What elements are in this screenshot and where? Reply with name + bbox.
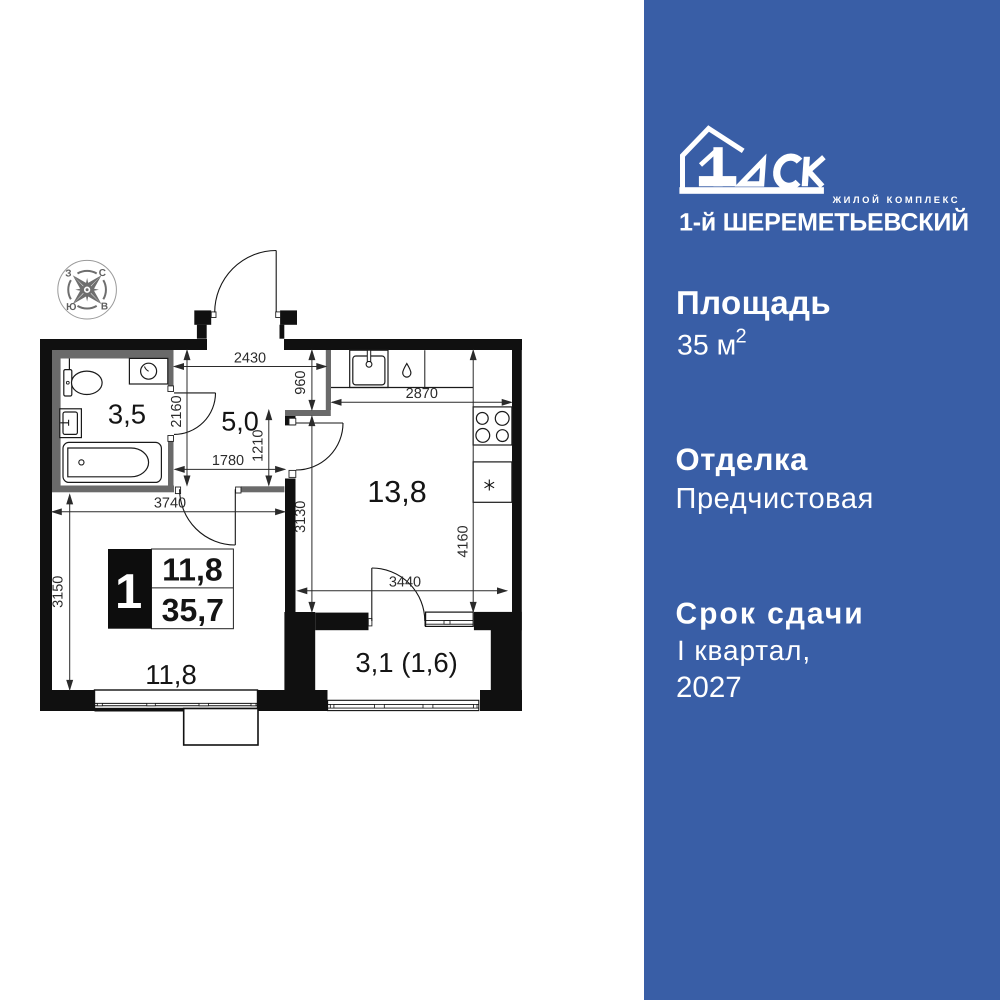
svg-text:I квартал,: I квартал, [677, 635, 811, 666]
svg-text:3,1 (1,6): 3,1 (1,6) [355, 647, 457, 678]
svg-text:2160: 2160 [169, 395, 185, 427]
svg-text:3150: 3150 [50, 576, 66, 608]
svg-text:2: 2 [736, 325, 747, 347]
svg-text:3130: 3130 [293, 501, 309, 533]
svg-text:Срок сдачи: Срок сдачи [676, 598, 865, 631]
svg-text:35 м: 35 м [677, 330, 736, 362]
svg-text:1780: 1780 [212, 453, 244, 469]
svg-text:13,8: 13,8 [367, 475, 426, 509]
svg-text:Ю: Ю [66, 302, 76, 313]
svg-text:З: З [65, 269, 71, 280]
svg-text:Площадь: Площадь [676, 284, 831, 321]
svg-text:35,7: 35,7 [162, 592, 224, 628]
svg-text:ЖИЛОЙ КОМПЛЕКС: ЖИЛОЙ КОМПЛЕКС [832, 194, 961, 205]
svg-text:960: 960 [293, 370, 309, 394]
svg-text:2027: 2027 [676, 671, 742, 704]
svg-text:3,5: 3,5 [108, 399, 146, 430]
svg-text:В: В [101, 302, 108, 313]
svg-text:11,8: 11,8 [162, 552, 223, 588]
svg-text:11,8: 11,8 [145, 659, 196, 690]
svg-text:С: С [99, 268, 106, 279]
svg-text:5,0: 5,0 [221, 407, 259, 437]
svg-text:2430: 2430 [234, 350, 266, 366]
svg-text:1: 1 [115, 565, 142, 619]
svg-text:1-й ШЕРЕМЕТЬЕВСКИЙ: 1-й ШЕРЕМЕТЬЕВСКИЙ [679, 207, 969, 236]
svg-text:Предчистовая: Предчистовая [676, 483, 874, 515]
svg-text:3740: 3740 [154, 496, 186, 512]
svg-text:2870: 2870 [406, 386, 438, 402]
svg-text:3440: 3440 [389, 575, 421, 591]
svg-text:Отделка: Отделка [676, 442, 809, 477]
svg-text:4160: 4160 [456, 525, 472, 557]
